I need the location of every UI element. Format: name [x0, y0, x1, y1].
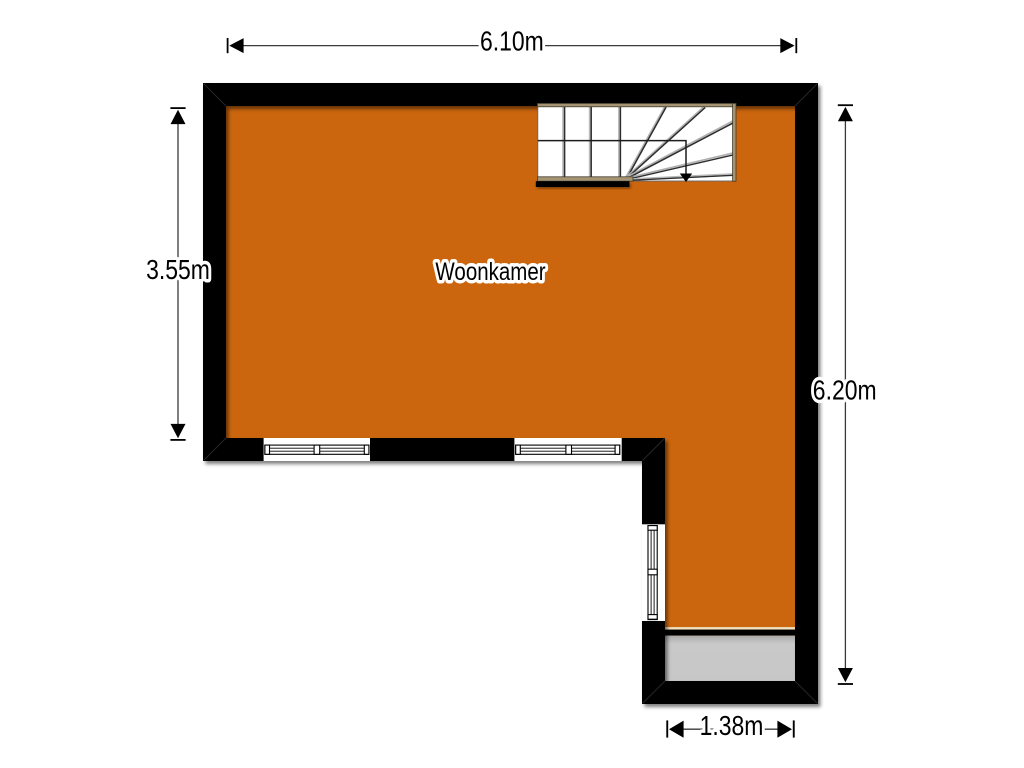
svg-text:Woonkamer: Woonkamer: [435, 257, 545, 285]
svg-text:6.10m: 6.10m: [480, 27, 544, 58]
svg-text:3.55m: 3.55m: [146, 255, 210, 286]
svg-text:1.38m: 1.38m: [700, 711, 764, 742]
svg-text:6.20m: 6.20m: [813, 376, 877, 407]
